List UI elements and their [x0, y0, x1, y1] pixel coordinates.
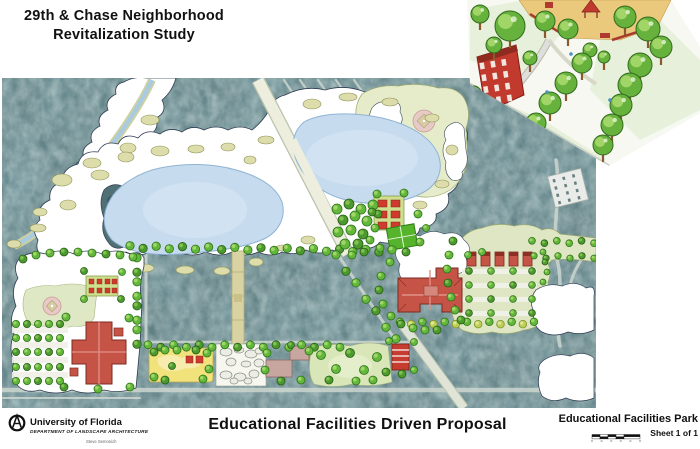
- promenade-path: [232, 251, 244, 347]
- garden-structure: [86, 276, 118, 296]
- institution-name: University of Florida: [30, 417, 122, 428]
- park-pocket: [531, 283, 594, 335]
- proposal-title: Educational Facilities Driven Proposal: [175, 416, 540, 434]
- baseball-diamond: [43, 297, 61, 315]
- study-title-line1: 29th & Chase Neighborhood: [16, 7, 232, 26]
- presentation-board: 29th & Chase Neighborhood Revitalization…: [0, 0, 700, 449]
- plaza-garden: [216, 344, 266, 386]
- sheet-title-block: Educational Facilities Park Sheet 1 of 1: [528, 413, 698, 438]
- institution-block: University of Florida DEPARTMENT OF LAND…: [8, 412, 198, 444]
- sheet-title: Educational Facilities Park: [528, 413, 698, 425]
- institution-department: DEPARTMENT OF LANDSCAPE ARCHITECTURE: [30, 430, 198, 435]
- shelter-structure: [392, 344, 409, 370]
- site-plan-map: [0, 0, 700, 449]
- aerial-photo-base: [0, 78, 597, 409]
- study-title-line2: Revitalization Study: [16, 26, 232, 45]
- park-pocket: [538, 353, 594, 401]
- author-name: Steve Semonich: [86, 439, 198, 444]
- sheet-number: Sheet 1 of 1: [528, 428, 698, 438]
- study-title: 29th & Chase Neighborhood Revitalization…: [16, 7, 232, 45]
